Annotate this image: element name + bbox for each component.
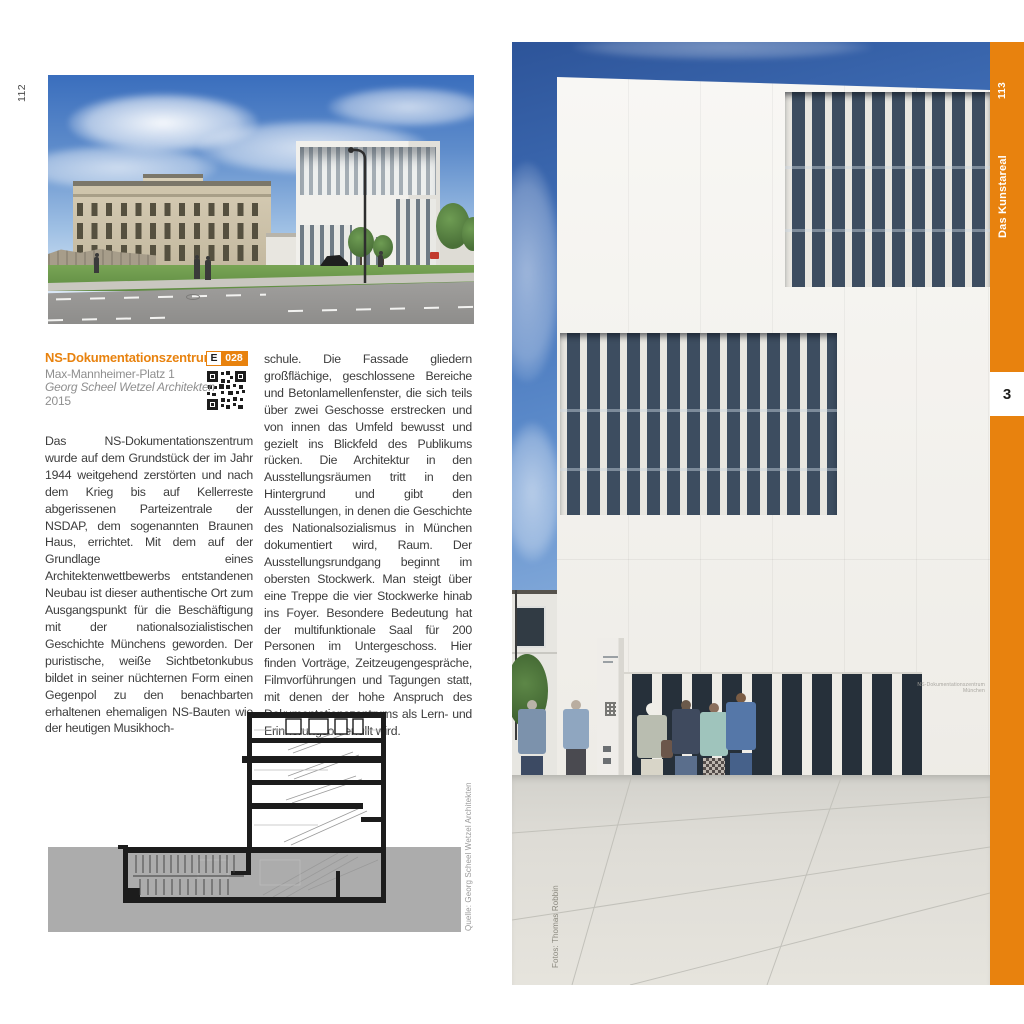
pylon-plan-graphic (605, 702, 616, 716)
cloud (328, 87, 474, 127)
entry-address: Max-Mannheimer-Platz 1 (45, 367, 215, 381)
red-vehicle (430, 252, 439, 259)
upper-window-band (785, 92, 990, 287)
badge-number: 028 (221, 352, 247, 365)
window-row (77, 203, 267, 216)
building-cornice (73, 194, 271, 197)
photo-credit: Fotos: Thomas Robbin (551, 854, 560, 968)
balcony-rail (512, 652, 558, 654)
building-sign: NS-Dokumentationszentrum München (910, 682, 985, 694)
section-drawing (48, 690, 461, 935)
entry-year: 2015 (45, 394, 215, 408)
facade-photo: NS-Dokumentationszentrum München (512, 42, 990, 985)
entry-architect: Georg Scheel Wetzel Architekten (45, 380, 215, 394)
window-row (77, 223, 267, 239)
pavement-joints (512, 775, 990, 985)
drawing-credit: Quelle: Georg Scheel Wetzel Architekten (464, 759, 473, 931)
window-transom (785, 229, 990, 232)
left-page-number: 112 (16, 62, 28, 102)
right-page-number: 113 (997, 69, 1008, 99)
pylon-pictogram (603, 746, 611, 752)
pedestrian (378, 255, 383, 267)
pedestrian (194, 259, 200, 279)
neighbor-window (515, 606, 546, 648)
plaza-pavement (512, 775, 990, 985)
ground-floor-windows (622, 672, 922, 782)
badge-letter: E (207, 352, 221, 365)
book-spread: { "left_page": { "page_number": "112", "… (0, 0, 1024, 1024)
chapter-index-notch: 3 (990, 372, 1024, 416)
chapter-tab-label: Das Kunstareal (997, 126, 1009, 238)
middle-window-band (560, 333, 837, 515)
tree (373, 235, 393, 259)
body-column-2: schule. Die Fassade gliedern großflächig… (264, 351, 472, 740)
pedestrian (94, 257, 99, 273)
window-transom (560, 409, 837, 412)
entry-title: NS-Dokumentationszentrum (45, 350, 215, 365)
street-photo (48, 75, 474, 324)
cube-window-band (396, 199, 436, 272)
street-lamp (338, 143, 374, 285)
window-transom (560, 468, 837, 471)
building-attic (73, 186, 271, 194)
chapter-index: 3 (1003, 386, 1011, 403)
pedestrian (205, 260, 211, 280)
entry-badge: E 028 (206, 351, 248, 366)
building-sign-line2: München (910, 688, 985, 694)
pylon-pictogram (603, 758, 611, 764)
window-transom (785, 166, 990, 169)
manhole (186, 294, 200, 300)
ground-band (48, 847, 461, 932)
pylon-text-line (603, 661, 613, 663)
pylon-text-line (603, 656, 618, 658)
